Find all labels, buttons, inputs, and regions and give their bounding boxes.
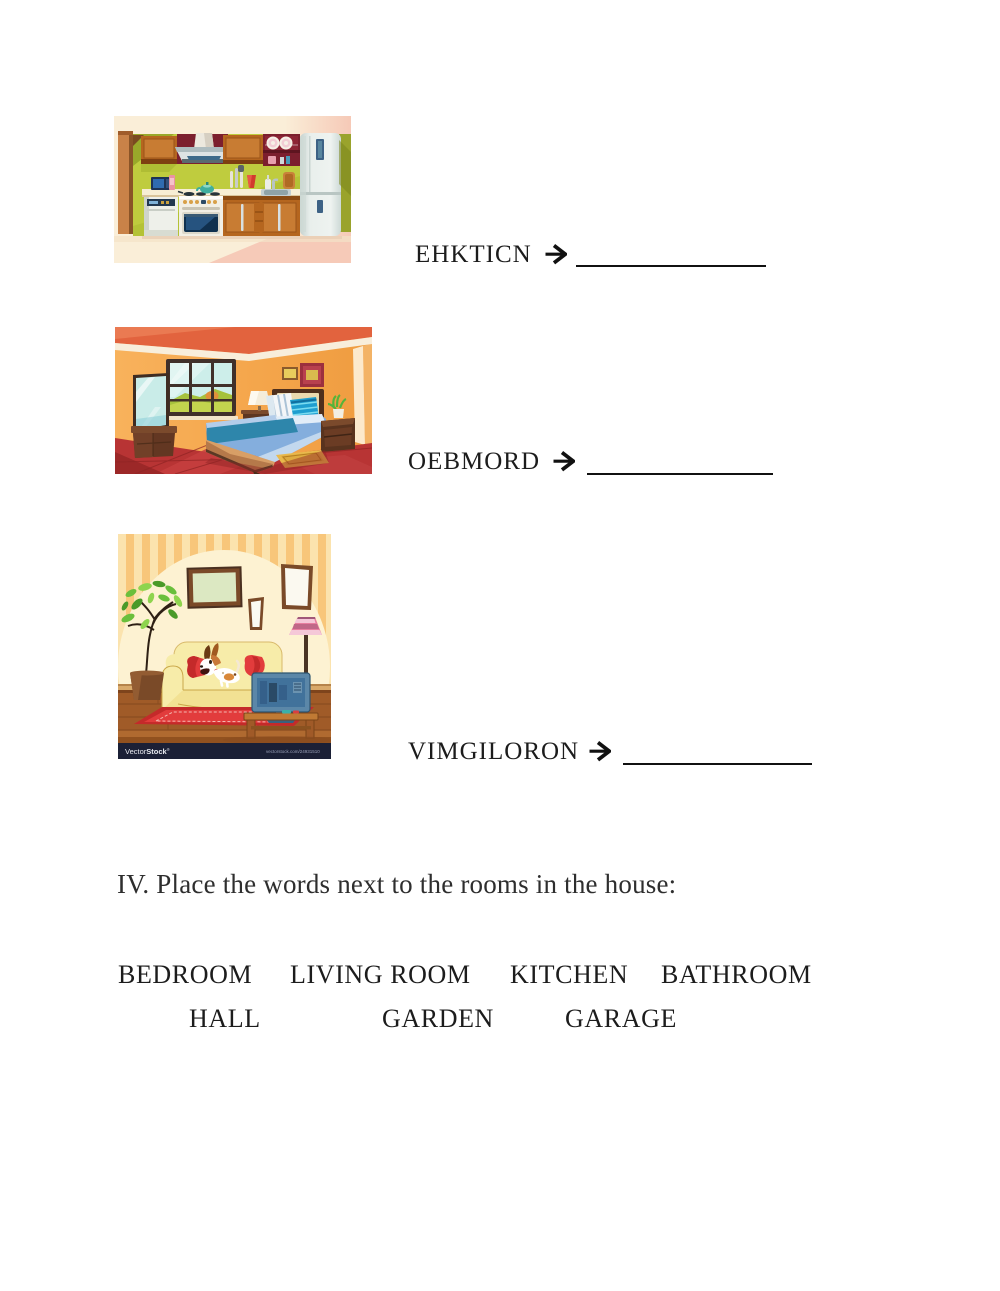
svg-text:VectorStock®: VectorStock®: [125, 747, 170, 756]
svg-text:vectorstock.com/24931510: vectorstock.com/24931510: [266, 749, 320, 754]
